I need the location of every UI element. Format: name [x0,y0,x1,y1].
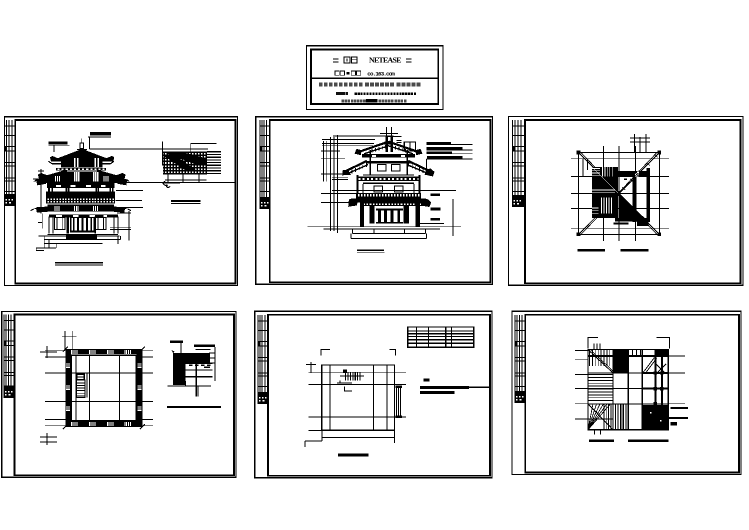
svg-text:NETEASE: NETEASE [369,55,401,64]
svg-text:co.163.com: co.163.com [367,71,395,78]
